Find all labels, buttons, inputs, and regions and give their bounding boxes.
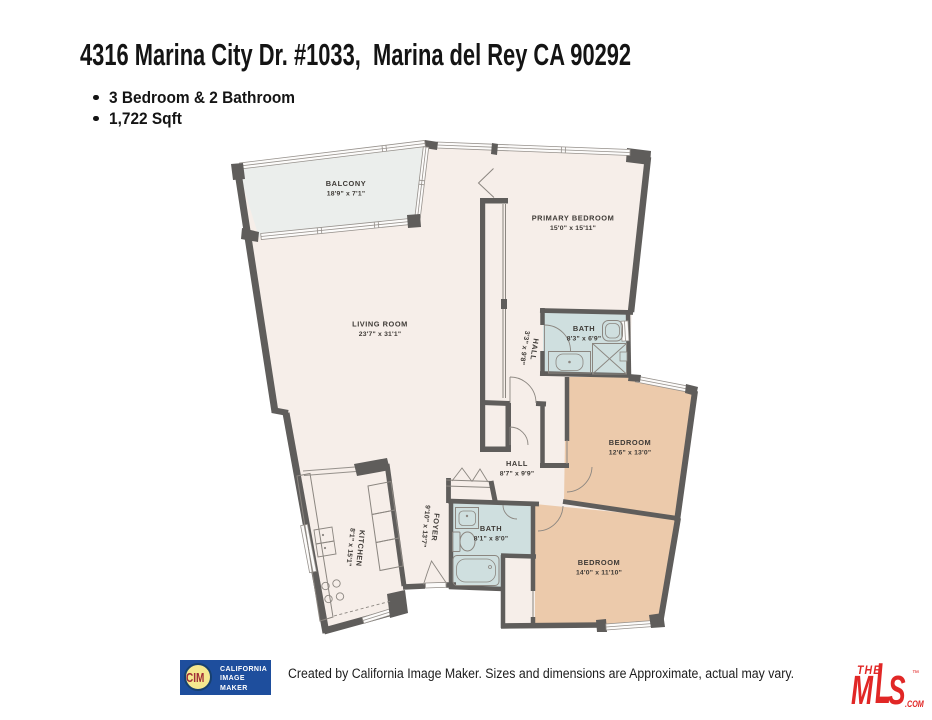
svg-text:8'7" x 9'9": 8'7" x 9'9" bbox=[500, 471, 535, 478]
svg-text:BALCONY: BALCONY bbox=[326, 179, 366, 188]
svg-text:BATH: BATH bbox=[573, 324, 595, 333]
svg-text:15'0" x 15'11": 15'0" x 15'11" bbox=[550, 225, 596, 232]
svg-text:23'7" x 31'1": 23'7" x 31'1" bbox=[359, 331, 402, 338]
svg-text:BEDROOM: BEDROOM bbox=[578, 558, 620, 567]
svg-text:BATH: BATH bbox=[480, 524, 502, 533]
svg-text:14'0" x 11'10": 14'0" x 11'10" bbox=[576, 570, 622, 577]
svg-text:PRIMARY BEDROOM: PRIMARY BEDROOM bbox=[532, 214, 615, 223]
svg-text:LIVING ROOM: LIVING ROOM bbox=[352, 320, 408, 329]
svg-text:18'9" x 7'1": 18'9" x 7'1" bbox=[327, 191, 366, 198]
svg-text:8'1" x 8'0": 8'1" x 8'0" bbox=[474, 536, 509, 543]
svg-text:8'3" x 6'9": 8'3" x 6'9" bbox=[567, 336, 602, 343]
svg-text:BEDROOM: BEDROOM bbox=[609, 438, 651, 447]
svg-text:HALL: HALL bbox=[506, 459, 528, 468]
svg-text:12'6" x 13'0": 12'6" x 13'0" bbox=[609, 450, 652, 457]
